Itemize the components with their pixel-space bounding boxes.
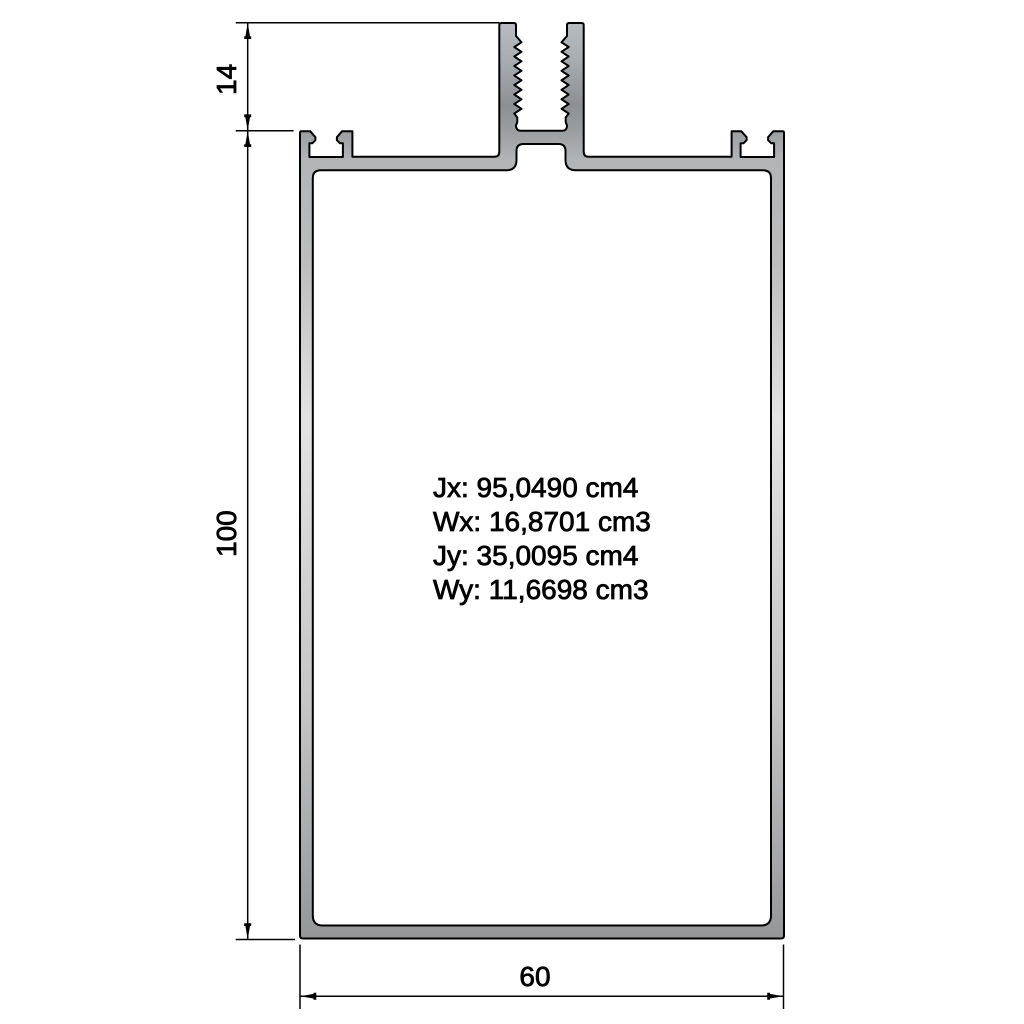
svg-text:14: 14 <box>211 64 242 95</box>
svg-text:Jx: 95,0490 cm4: Jx: 95,0490 cm4 <box>433 472 638 503</box>
svg-text:60: 60 <box>519 961 550 992</box>
svg-text:Jy: 35,0095 cm4: Jy: 35,0095 cm4 <box>433 540 638 571</box>
svg-text:100: 100 <box>211 510 242 557</box>
svg-text:Wy: 11,6698 cm3: Wy: 11,6698 cm3 <box>433 574 649 605</box>
svg-text:Wx: 16,8701 cm3: Wx: 16,8701 cm3 <box>433 506 651 537</box>
